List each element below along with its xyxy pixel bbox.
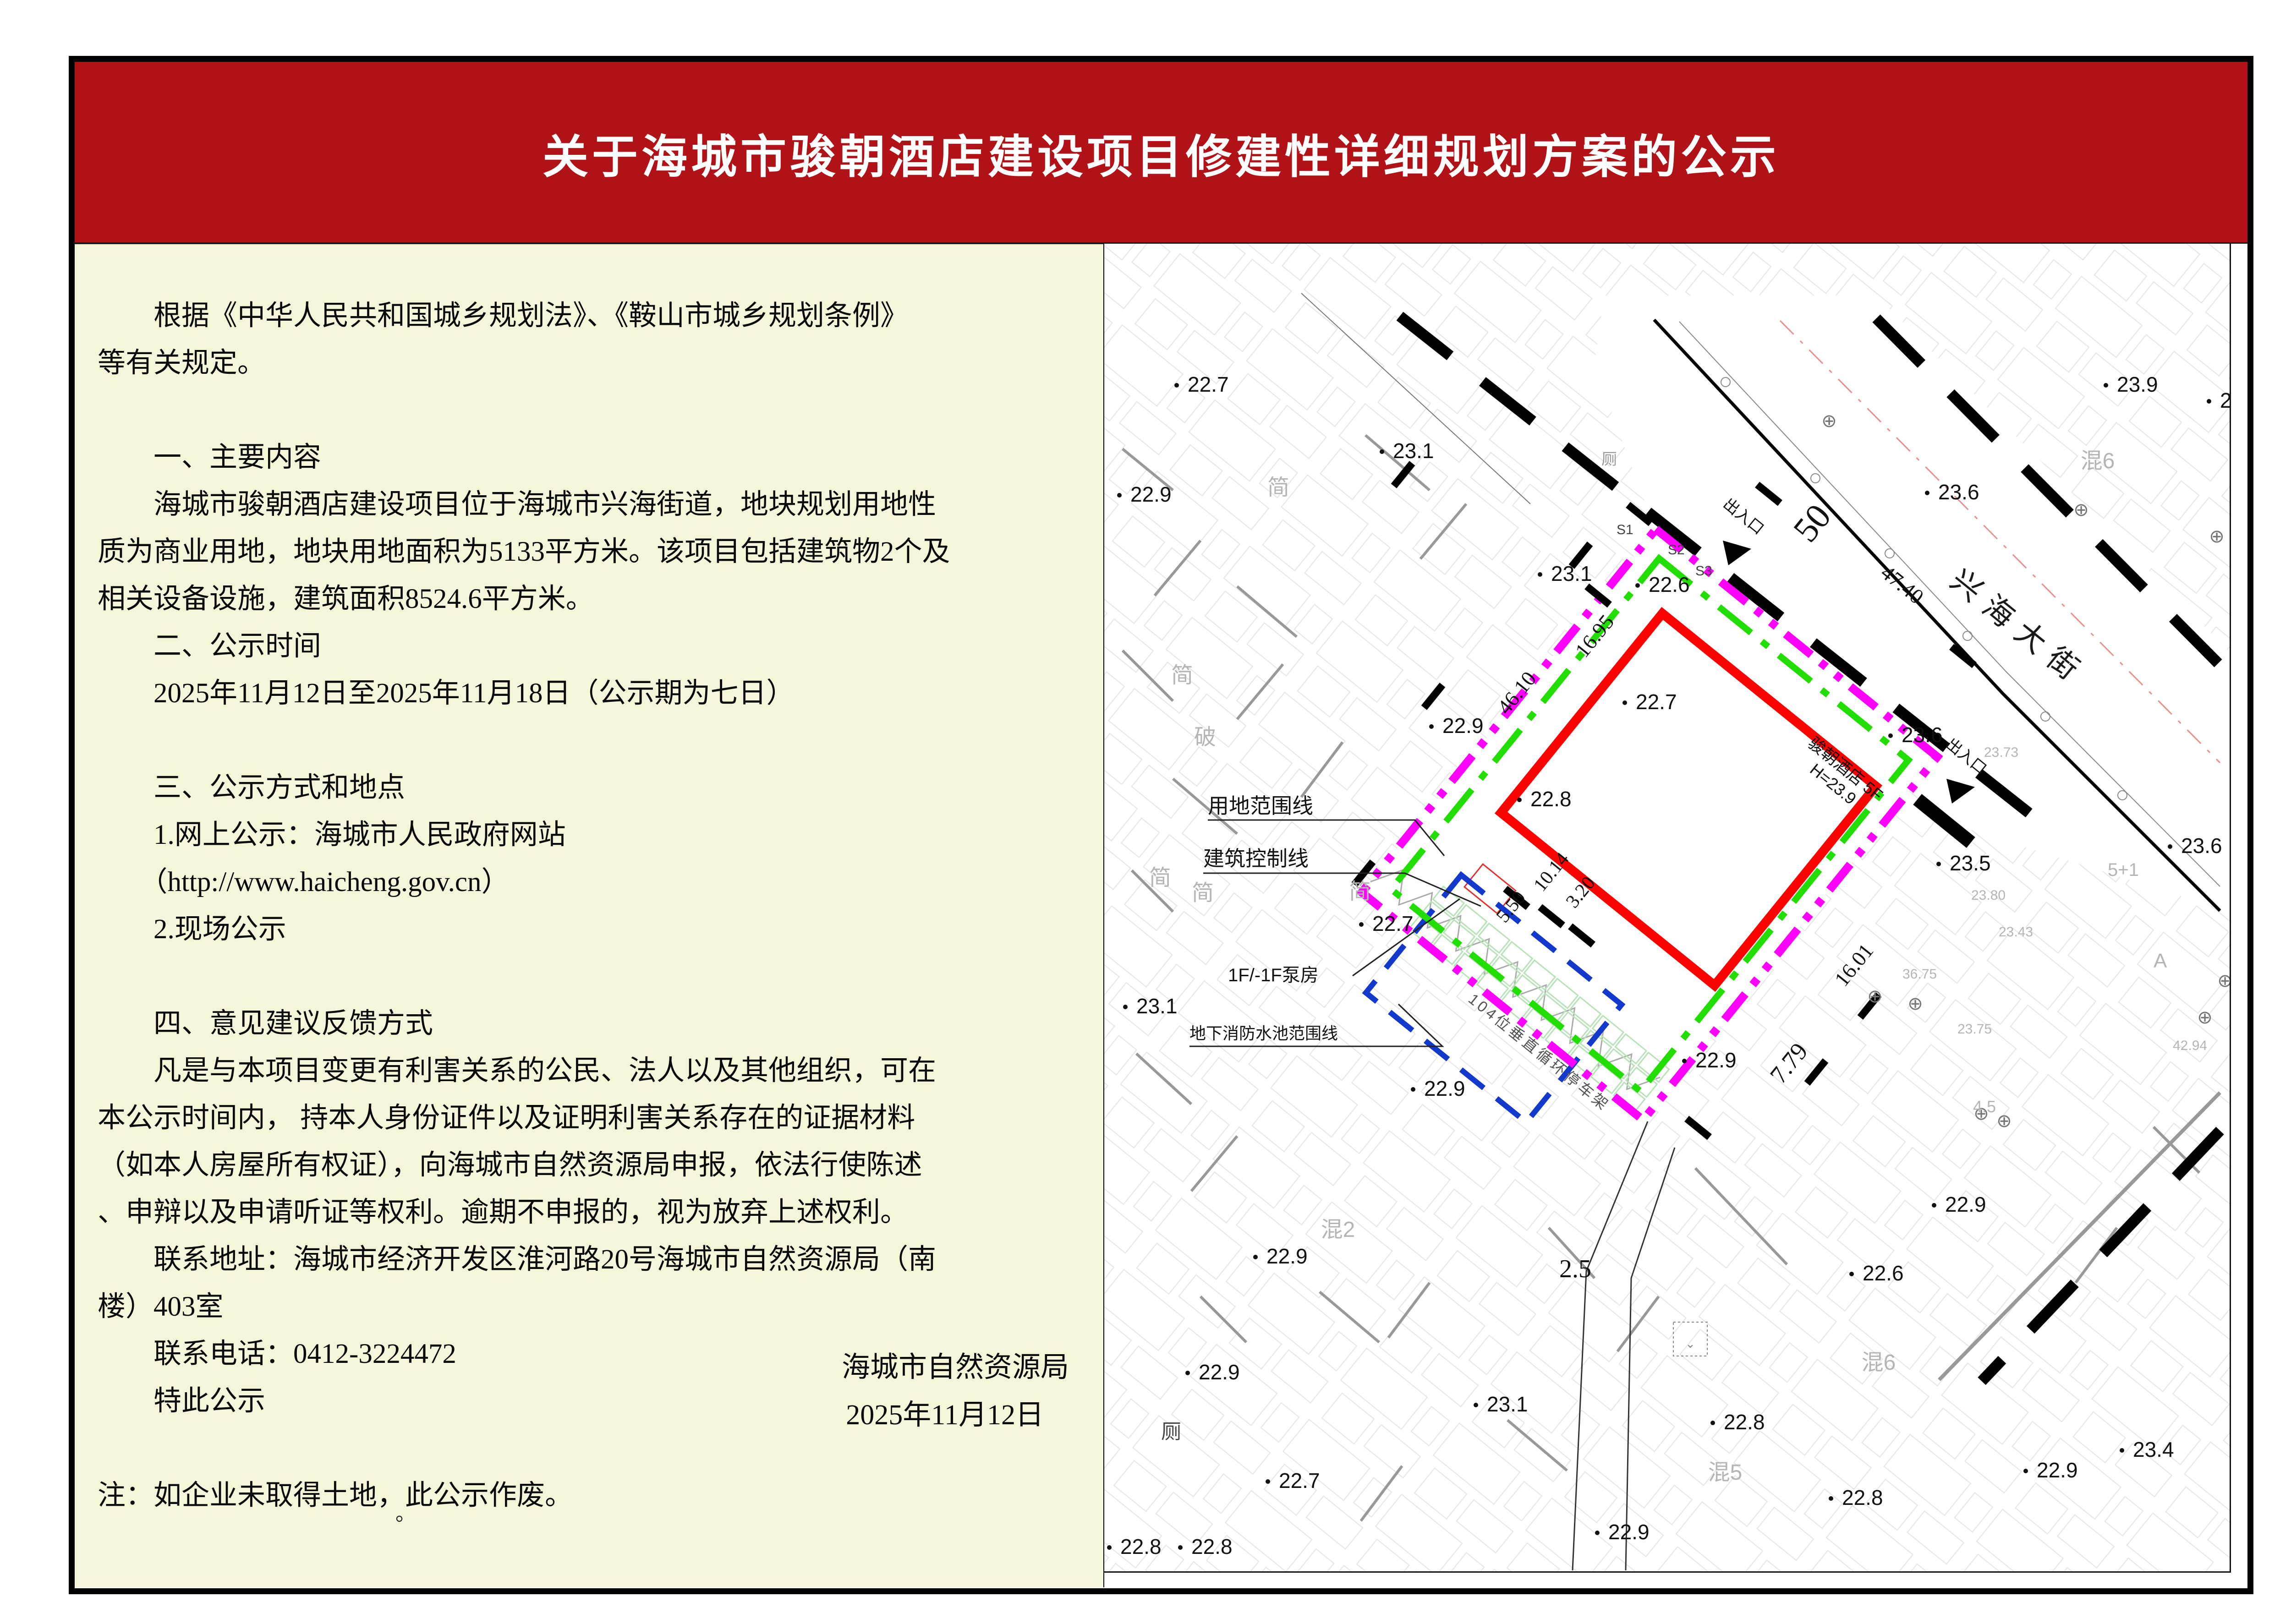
notice-line: 相关设备设施，建筑面积8524.6平方米。 xyxy=(98,575,1087,623)
elevation-dot xyxy=(2120,1448,2124,1453)
elevation-label: 22.9 xyxy=(1442,714,1484,738)
notice-line: 根据《中华人民共和国城乡规划法》、《鞍山市城乡规划条例》 xyxy=(98,292,1087,339)
notice-line: 一、主要内容 xyxy=(98,434,1087,481)
map-label: 简 xyxy=(1192,881,1214,905)
elevation-dot xyxy=(1429,724,1434,729)
elevation-label: 23 xyxy=(2220,388,2231,412)
map-label: 破 xyxy=(1194,725,1216,749)
signature-date: 2025年11月12日 xyxy=(846,1391,1069,1439)
tree-icon: ⊕ xyxy=(1996,1111,2012,1131)
map-label: 简 xyxy=(1267,476,1289,500)
signature-org: 海城市自然资源局 xyxy=(602,1344,1069,1391)
elevation-label: 23.5 xyxy=(1950,851,1991,875)
elevation-dot xyxy=(1253,1255,1258,1259)
map-label: 4.5 xyxy=(1973,1097,1996,1116)
map-label: 23.73 xyxy=(1984,745,2018,760)
notice-line: 楼）403室 xyxy=(98,1283,1087,1330)
map-label: 简 xyxy=(1149,866,1171,890)
elevation-dot xyxy=(1936,862,1941,866)
elevation-label: 22.9 xyxy=(1695,1048,1737,1072)
elevation-label: 23.4 xyxy=(2133,1438,2174,1461)
elevation-label: 22.7 xyxy=(1636,690,1677,714)
elevation-dot xyxy=(1266,1479,1270,1484)
elevation-label: 23.9 xyxy=(2117,372,2158,396)
map-label: 建筑控制线 xyxy=(1203,847,1309,870)
elevation-label: 22.7 xyxy=(1279,1469,1320,1493)
stray-mark: 。 xyxy=(395,1497,416,1526)
elevation-dot xyxy=(1178,1545,1183,1550)
notice-line: 二、公示时间 xyxy=(98,623,1087,670)
map-label: 简 xyxy=(1171,663,1193,688)
elevation-label: 22.8 xyxy=(1191,1535,1233,1558)
notice-line: （http://www.haicheng.gov.cn） xyxy=(98,858,1087,906)
map-label: 23.75 xyxy=(1957,1022,1992,1037)
notice-line: 本公示时间内， 持本人身份证件以及证明利害关系存在的证据材料 xyxy=(98,1094,1087,1142)
map-label: 地下消防水池范围线 xyxy=(1189,1024,1338,1043)
poster-page: 关于海城市骏朝酒店建设项目修建性详细规划方案的公示 根据《中华人民共和国城乡规划… xyxy=(0,0,2291,1624)
elevation-dot xyxy=(1107,1545,1112,1550)
tree-icon: ⊕ xyxy=(2217,971,2231,991)
notice-body: 根据《中华人民共和国城乡规划法》、《鞍山市城乡规划条例》等有关规定。 一、主要内… xyxy=(98,292,1087,1519)
notice-line xyxy=(98,953,1087,1000)
notice-line: 四、意见建议反馈方式 xyxy=(98,1000,1087,1047)
map-bottom-border xyxy=(1104,1571,2231,1573)
notice-line: 三、公示方式和地点 xyxy=(98,764,1087,811)
notice-line: 1.网上公示：海城市人民政府网站 xyxy=(98,811,1087,858)
map-label: 36.75 xyxy=(1902,967,1937,982)
map-label: S2 xyxy=(1668,542,1685,558)
notice-line: 等有关规定。 xyxy=(98,339,1087,387)
map-label: 2.5 xyxy=(1559,1255,1591,1283)
notice-line xyxy=(98,717,1087,764)
title-banner: 关于海城市骏朝酒店建设项目修建性详细规划方案的公示 xyxy=(75,62,2247,243)
elevation-dot xyxy=(2104,383,2108,388)
elevation-dot xyxy=(1174,383,1179,388)
tree-icon: ⊕ xyxy=(2197,1007,2213,1028)
map-right-border xyxy=(2230,244,2231,1572)
elevation-label: 22.6 xyxy=(1649,573,1690,596)
elevation-label: 22.8 xyxy=(1724,1410,1765,1434)
elevation-label: 22.6 xyxy=(1863,1261,1904,1285)
notice-line: 联系地址：海城市经济开发区淮河路20号海城市自然资源局（南 xyxy=(98,1236,1087,1283)
notice-line: 海城市骏朝酒店建设项目位于海城市兴海街道，地块规划用地性 xyxy=(98,481,1087,528)
map-label: 厕 xyxy=(1601,451,1617,468)
elevation-label: 22.8 xyxy=(1530,787,1572,811)
elevation-label: 22.9 xyxy=(1608,1520,1650,1544)
notice-line: 2025年11月12日至2025年11月18日（公示期为七日） xyxy=(98,670,1087,717)
elevation-dot xyxy=(1635,583,1640,588)
elevation-dot xyxy=(1411,1087,1415,1092)
elevation-dot xyxy=(1888,733,1893,738)
tree-icon: ⊕ xyxy=(1867,986,1883,1006)
elevation-label: 22.9 xyxy=(2037,1458,2078,1482)
map-label: 混5 xyxy=(1708,1460,1743,1485)
map-label: 混2 xyxy=(1321,1218,1355,1242)
notice-line xyxy=(98,387,1087,434)
elevation-dot xyxy=(1682,1059,1687,1063)
map-label: 1F/-1F泵房 xyxy=(1228,965,1319,985)
elevation-label: 22.9 xyxy=(1266,1244,1308,1268)
elevation-dot xyxy=(1474,1403,1478,1407)
notice-panel: 根据《中华人民共和国城乡规划法》、《鞍山市城乡规划条例》等有关规定。 一、主要内… xyxy=(75,244,1103,1587)
map-label: 厕 xyxy=(1161,1421,1181,1443)
elevation-dot xyxy=(1710,1421,1715,1425)
elevation-dot xyxy=(1622,700,1627,705)
notice-line: 2.现场公示 xyxy=(98,906,1087,953)
elevation-label: 23.1 xyxy=(1487,1392,1528,1416)
map-panel: ⊕⊕⊕⊕⊕⊕⊕⊕⊕⌄46.1016.9547.405016.017.792.55… xyxy=(1104,244,2247,1587)
elevation-dot xyxy=(1538,572,1542,577)
notice-line: （如本人房屋所有权证），向海城市自然资源局申报，依法行使陈述 xyxy=(98,1142,1087,1189)
elevation-dot xyxy=(1849,1272,1854,1276)
map-label: S3 xyxy=(1695,563,1712,579)
elevation-label: 22.8 xyxy=(1120,1535,1162,1558)
elevation-label: 22.9 xyxy=(1199,1360,1240,1384)
elevation-label: 23.1 xyxy=(1136,994,1178,1018)
map-label: S1 xyxy=(1617,522,1633,537)
elevation-label: 22.8 xyxy=(1842,1486,1883,1509)
tree-icon: ⊕ xyxy=(2073,500,2089,520)
map-label: A xyxy=(2154,950,2167,972)
elevation-dot xyxy=(2168,844,2172,849)
elevation-dot xyxy=(1829,1496,1833,1501)
map-label: 混6 xyxy=(2081,449,2115,473)
notice-line: 凡是与本项目变更有利害关系的公民、法人以及其他组织，可在 xyxy=(98,1047,1087,1094)
map-label: 用地范围线 xyxy=(1208,794,1313,818)
elevation-dot xyxy=(2023,1469,2028,1473)
tree-icon: ⊕ xyxy=(1821,411,1837,431)
map-label: 混6 xyxy=(1862,1351,1896,1375)
elevation-label: 23.1 xyxy=(1551,562,1592,585)
elevation-dot xyxy=(1123,1005,1128,1009)
elevation-label: 23.1 xyxy=(1393,439,1434,463)
elevation-dot xyxy=(1595,1531,1600,1535)
elevation-dot xyxy=(1359,922,1364,927)
svg-text:⌄: ⌄ xyxy=(1685,1337,1695,1351)
map-label: 简 xyxy=(1349,880,1371,904)
map-label: 23.43 xyxy=(1999,924,2033,940)
map-svg: ⊕⊕⊕⊕⊕⊕⊕⊕⊕⌄46.1016.9547.405016.017.792.55… xyxy=(1104,244,2231,1572)
notice-line: 质为商业用地，地块用地面积为5133平方米。该项目包括建筑物2个及 xyxy=(98,528,1087,575)
map-label: 23.80 xyxy=(1971,888,2006,903)
map-label: 5+1 xyxy=(2108,860,2139,880)
elevation-label: 23.6 xyxy=(1902,723,1943,747)
elevation-dot xyxy=(2207,399,2211,404)
notice-line: 、申辩以及申请听证等权利。逾期不申报的，视为放弃上述权利。 xyxy=(98,1189,1087,1236)
tree-icon: ⊕ xyxy=(1907,994,1923,1014)
signature-block: 海城市自然资源局 2025年11月12日 xyxy=(602,1344,1069,1439)
elevation-label: 22.7 xyxy=(1372,912,1414,935)
elevation-label: 23.6 xyxy=(1938,480,1979,504)
elevation-label: 22.7 xyxy=(1188,372,1229,396)
elevation-dot xyxy=(1932,1203,1936,1208)
page-title: 关于海城市骏朝酒店建设项目修建性详细规划方案的公示 xyxy=(543,120,1780,186)
elevation-dot xyxy=(1380,449,1384,454)
elevation-label: 22.9 xyxy=(1424,1077,1465,1100)
tree-icon: ⊕ xyxy=(2209,526,2225,547)
elevation-label: 22.9 xyxy=(1130,482,1172,506)
elevation-dot xyxy=(1185,1371,1190,1375)
elevation-dot xyxy=(1925,491,1929,495)
map-label: 42.94 xyxy=(2173,1038,2207,1053)
notice-line: 注：如企业未取得土地，此公示作废。 xyxy=(98,1472,1087,1519)
elevation-label: 22.9 xyxy=(1945,1192,1986,1216)
elevation-label: 23.6 xyxy=(2181,834,2222,858)
elevation-dot xyxy=(1517,798,1522,802)
elevation-dot xyxy=(1117,493,1122,498)
